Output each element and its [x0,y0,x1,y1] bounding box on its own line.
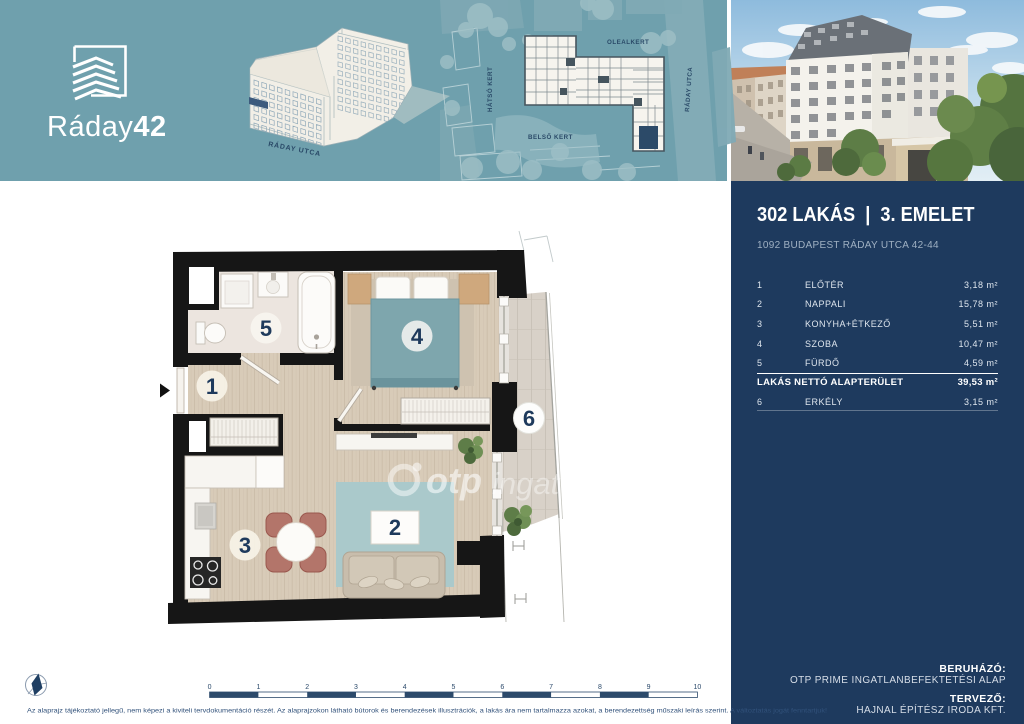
svg-text:4: 4 [411,324,424,349]
svg-text:5: 5 [452,684,456,691]
svg-text:OLEALKERT: OLEALKERT [607,39,649,46]
svg-text:10: 10 [694,684,702,691]
svg-text:5: 5 [260,316,272,341]
svg-text:4: 4 [403,684,407,691]
svg-text:1: 1 [256,684,260,691]
svg-text:6: 6 [523,406,535,431]
svg-text:HÁTSÓ KERT: HÁTSÓ KERT [486,67,494,112]
svg-text:2: 2 [389,515,401,540]
svg-text:3: 3 [239,533,251,558]
svg-text:Ráday42: Ráday42 [47,111,167,143]
svg-text:BELSŐ KERT: BELSŐ KERT [528,134,573,141]
svg-text:otp: otp [426,460,482,501]
svg-text:9: 9 [647,684,651,691]
svg-text:6: 6 [500,684,504,691]
svg-text:1: 1 [206,374,218,399]
svg-text:0: 0 [208,684,212,691]
svg-text:ingat: ingat [492,466,561,501]
svg-text:3: 3 [354,684,358,691]
svg-text:7: 7 [549,684,553,691]
svg-text:8: 8 [598,684,602,691]
svg-text:2: 2 [305,684,309,691]
svg-text:Az alaprajz tájékoztató jelleg: Az alaprajz tájékoztató jellegű, nem kép… [27,708,827,715]
